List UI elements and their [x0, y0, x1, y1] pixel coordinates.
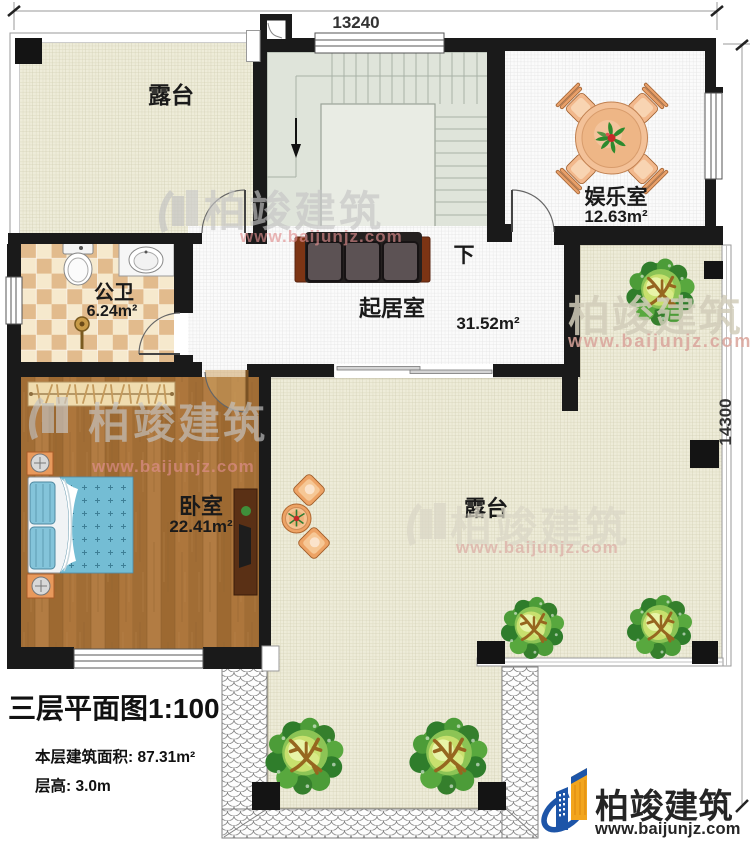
- svg-text:层高: 3.0m: 层高: 3.0m: [35, 776, 111, 795]
- svg-text:22.41m²: 22.41m²: [169, 517, 233, 536]
- svg-text:6.24m²: 6.24m²: [87, 303, 138, 320]
- svg-text:柏竣建筑: 柏竣建筑: [88, 400, 268, 447]
- svg-text:14300: 14300: [716, 398, 735, 445]
- svg-text:起居室: 起居室: [358, 296, 425, 321]
- svg-text:娱乐室: 娱乐室: [585, 185, 648, 209]
- svg-text:13240: 13240: [332, 13, 379, 32]
- svg-text:www.baijunjz.com: www.baijunjz.com: [455, 538, 619, 557]
- svg-text:卧室: 卧室: [179, 494, 223, 519]
- svg-text:12.63m²: 12.63m²: [584, 207, 648, 226]
- svg-text:www.baijunjz.com: www.baijunjz.com: [594, 820, 741, 838]
- svg-text:公卫: 公卫: [94, 281, 134, 304]
- svg-text:www.baijunjz.com: www.baijunjz.com: [91, 457, 255, 476]
- svg-text:露台: 露台: [148, 82, 194, 108]
- svg-text:www.baijunjz.com: www.baijunjz.com: [239, 227, 403, 246]
- svg-text:www.baijunjz.com: www.baijunjz.com: [567, 331, 750, 351]
- svg-text:本层建筑面积: 87.31m²: 本层建筑面积: 87.31m²: [35, 747, 195, 766]
- svg-text:三层平面图1:100: 三层平面图1:100: [8, 693, 220, 724]
- svg-text:31.52m²: 31.52m²: [456, 314, 520, 333]
- svg-text:下: 下: [454, 244, 475, 267]
